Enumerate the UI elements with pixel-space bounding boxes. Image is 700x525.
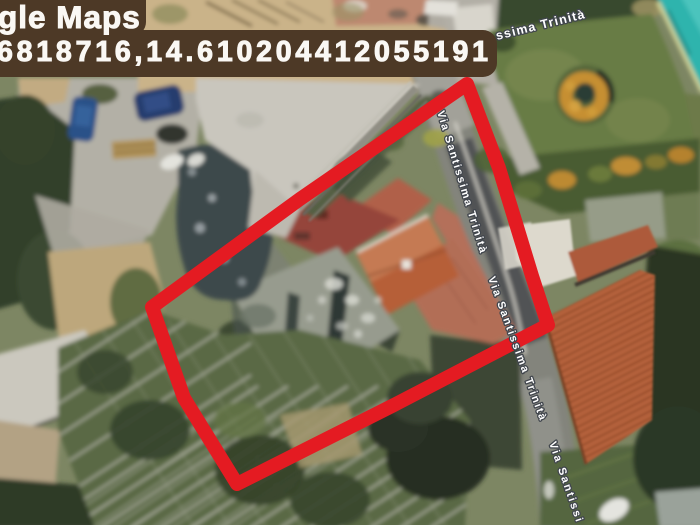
svg-text:gle Maps: gle Maps <box>0 0 141 35</box>
